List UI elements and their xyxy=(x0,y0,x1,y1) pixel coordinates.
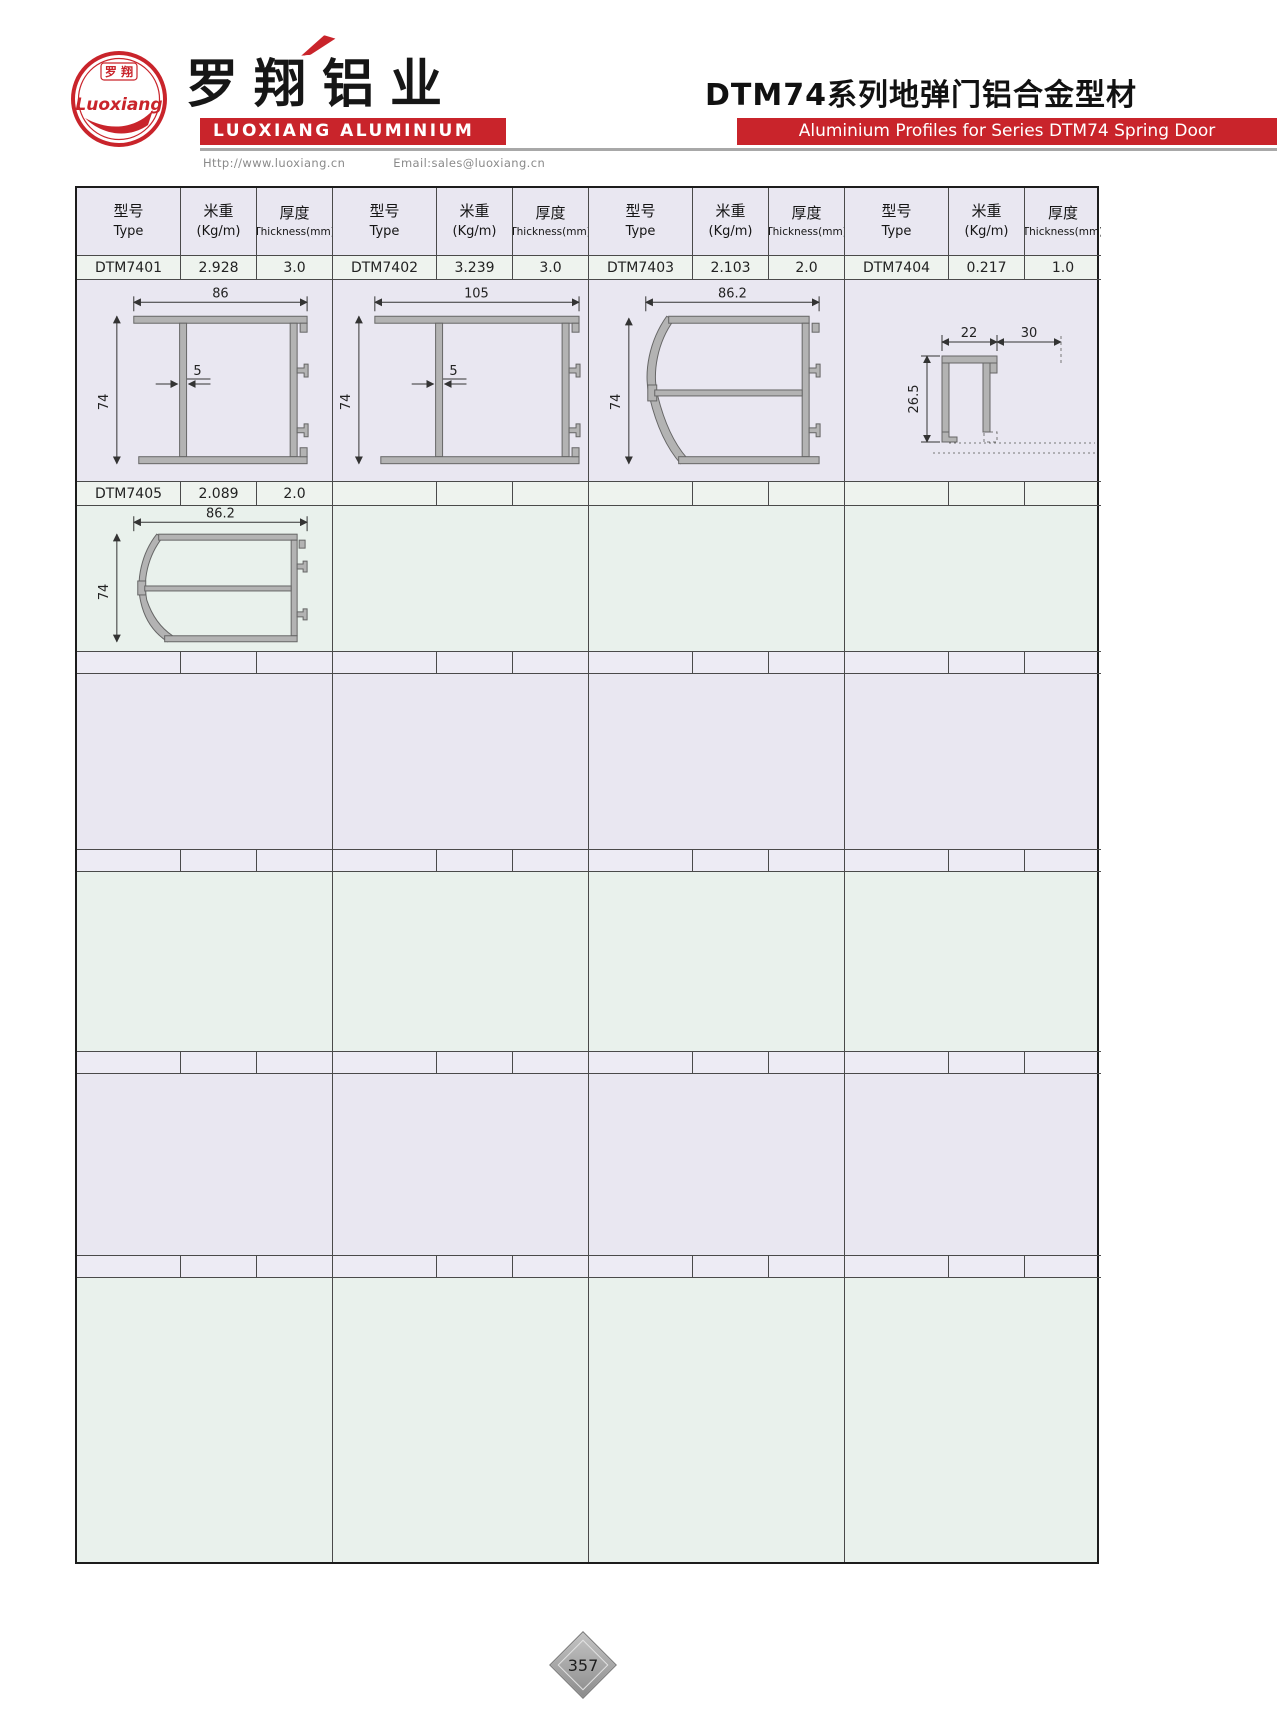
empty-drawing-cell xyxy=(77,674,333,850)
empty-cell xyxy=(1025,1052,1101,1074)
drawing-row-2: 86.2 74 xyxy=(77,506,1097,652)
empty-cell xyxy=(769,1052,845,1074)
type-cell: DTM7402 xyxy=(333,256,437,280)
thickness-cell: 3.0 xyxy=(257,256,333,280)
empty-drawing-row xyxy=(77,1074,1097,1256)
dim-width-label: 86.2 xyxy=(206,506,235,521)
empty-cell xyxy=(257,652,333,674)
empty-cell xyxy=(333,1256,437,1278)
dim-width-label: 86.2 xyxy=(718,286,747,301)
empty-drawing-row xyxy=(77,1278,1097,1562)
empty-cell xyxy=(949,850,1025,872)
empty-cell xyxy=(1025,652,1101,674)
dim-width-label: 86 xyxy=(212,286,228,301)
empty-cell xyxy=(333,1052,437,1074)
logo-script-text: Luoxiang xyxy=(75,95,162,115)
empty-cell xyxy=(589,1256,693,1278)
empty-drawing-cell xyxy=(845,506,1101,652)
weight-cell: 2.928 xyxy=(181,256,257,280)
empty-cell xyxy=(949,482,1025,506)
empty-drawing-cell xyxy=(589,674,845,850)
company-logo: 罗 翔 Luoxiang xyxy=(68,46,170,152)
dim-height-label: 74 xyxy=(97,394,112,410)
header-thickness: 厚度Thickness(mm) xyxy=(513,188,589,256)
thickness-cell: 1.0 xyxy=(1025,256,1101,280)
empty-cell xyxy=(181,1052,257,1074)
empty-drawing-cell xyxy=(589,1074,845,1256)
header-type: 型号Type xyxy=(589,188,693,256)
series-title-english-banner: Aluminium Profiles for Series DTM74 Spri… xyxy=(737,118,1277,145)
empty-drawing-cell xyxy=(845,1074,1101,1256)
empty-cell xyxy=(181,850,257,872)
header-type: 型号Type xyxy=(845,188,949,256)
drawing-row-1: 86 5 74 xyxy=(77,280,1097,482)
dim-web-label: 5 xyxy=(193,364,201,379)
empty-cell xyxy=(257,1052,333,1074)
empty-drawing-cell xyxy=(845,872,1101,1052)
header-weight: 米重(Kg/m) xyxy=(437,188,513,256)
page-number: 357 xyxy=(552,1634,614,1696)
type-cell: DTM7403 xyxy=(589,256,693,280)
header-weight: 米重(Kg/m) xyxy=(181,188,257,256)
empty-spec-row xyxy=(77,652,1097,674)
empty-cell xyxy=(513,482,589,506)
empty-drawing-cell xyxy=(77,1278,333,1562)
empty-cell xyxy=(949,1256,1025,1278)
empty-cell xyxy=(257,850,333,872)
drawing-cell-dtm7404: 22 30 26.5 xyxy=(845,280,1101,482)
empty-cell xyxy=(437,652,513,674)
empty-cell xyxy=(589,1052,693,1074)
dim-web-label: 5 xyxy=(449,364,457,379)
empty-cell xyxy=(513,1256,589,1278)
dim-width-label: 22 xyxy=(961,326,978,341)
header-thickness: 厚度Thickness(mm) xyxy=(769,188,845,256)
table-header-row: 型号Type 米重(Kg/m) 厚度Thickness(mm) 型号Type 米… xyxy=(77,188,1097,256)
empty-cell xyxy=(693,1052,769,1074)
header-type: 型号Type xyxy=(333,188,437,256)
weight-cell: 0.217 xyxy=(949,256,1025,280)
empty-cell xyxy=(845,482,949,506)
header-thickness: 厚度Thickness(mm) xyxy=(1025,188,1101,256)
series-title-chinese: DTM74系列地弹门铝合金型材 xyxy=(705,70,1137,114)
empty-cell xyxy=(949,1052,1025,1074)
empty-drawing-row xyxy=(77,872,1097,1052)
empty-drawing-cell xyxy=(589,506,845,652)
empty-cell xyxy=(437,850,513,872)
dim-height-label: 26.5 xyxy=(907,385,922,414)
empty-drawing-cell xyxy=(333,872,589,1052)
empty-cell xyxy=(589,652,693,674)
empty-cell xyxy=(1025,482,1101,506)
empty-spec-row xyxy=(77,1256,1097,1278)
empty-cell xyxy=(845,652,949,674)
empty-cell xyxy=(693,482,769,506)
empty-drawing-cell xyxy=(333,1074,589,1256)
empty-cell xyxy=(513,652,589,674)
empty-cell xyxy=(589,482,693,506)
website-text: Http://www.luoxiang.cn xyxy=(203,156,345,170)
empty-cell xyxy=(769,482,845,506)
empty-drawing-cell xyxy=(845,674,1101,850)
empty-cell xyxy=(589,850,693,872)
empty-drawing-cell xyxy=(77,872,333,1052)
dim-height-label: 74 xyxy=(97,584,112,600)
empty-drawing-row xyxy=(77,674,1097,850)
empty-drawing-cell xyxy=(333,1278,589,1562)
catalog-page: 罗 翔 Luoxiang 罗翔铝业 LUOXIANG ALUMINIUM Htt… xyxy=(0,0,1277,1721)
weight-cell: 2.089 xyxy=(181,482,257,506)
empty-cell xyxy=(693,850,769,872)
catalog-table: 型号Type 米重(Kg/m) 厚度Thickness(mm) 型号Type 米… xyxy=(75,186,1099,1564)
logo-seal-text: 罗 翔 xyxy=(105,64,133,79)
profile-drawing-dtm7405: 86.2 74 xyxy=(77,506,332,652)
empty-cell xyxy=(77,850,181,872)
empty-cell xyxy=(437,1052,513,1074)
empty-cell xyxy=(513,1052,589,1074)
empty-cell xyxy=(949,652,1025,674)
drawing-cell-dtm7402: 105 5 74 xyxy=(333,280,589,482)
profile-drawing-dtm7401: 86 5 74 xyxy=(77,280,332,482)
contact-line: Http://www.luoxiang.cnEmail:sales@luoxia… xyxy=(203,156,593,170)
spec-row-1: DTM7401 2.928 3.0 DTM7402 3.239 3.0 DTM7… xyxy=(77,256,1097,280)
empty-drawing-cell xyxy=(845,1278,1101,1562)
drawing-cell-dtm7403: 86.2 74 xyxy=(589,280,845,482)
dim-height-label: 74 xyxy=(609,394,624,410)
brand-name-english-banner: LUOXIANG ALUMINIUM xyxy=(200,118,506,145)
empty-spec-row xyxy=(77,850,1097,872)
empty-cell xyxy=(333,482,437,506)
empty-drawing-cell xyxy=(589,1278,845,1562)
empty-cell xyxy=(181,1256,257,1278)
profile-drawing-dtm7402: 105 5 74 xyxy=(333,280,588,482)
empty-cell xyxy=(769,850,845,872)
thickness-cell: 2.0 xyxy=(257,482,333,506)
empty-cell xyxy=(845,1052,949,1074)
empty-cell xyxy=(1025,850,1101,872)
dim-offset-label: 30 xyxy=(1021,326,1038,341)
empty-cell xyxy=(77,1052,181,1074)
empty-cell xyxy=(333,850,437,872)
profile-drawing-dtm7404: 22 30 26.5 xyxy=(845,280,1101,482)
empty-cell xyxy=(769,1256,845,1278)
type-cell: DTM7404 xyxy=(845,256,949,280)
empty-spec-row xyxy=(77,1052,1097,1074)
header-weight: 米重(Kg/m) xyxy=(949,188,1025,256)
empty-drawing-cell xyxy=(333,506,589,652)
empty-cell xyxy=(437,1256,513,1278)
empty-cell xyxy=(845,1256,949,1278)
empty-cell xyxy=(77,1256,181,1278)
empty-cell xyxy=(693,1256,769,1278)
empty-drawing-cell xyxy=(77,1074,333,1256)
empty-cell xyxy=(437,482,513,506)
brand-name-chinese: 罗翔铝业 xyxy=(186,42,458,117)
email-text: Email:sales@luoxiang.cn xyxy=(393,156,545,170)
weight-cell: 2.103 xyxy=(693,256,769,280)
header-divider xyxy=(200,148,1277,151)
drawing-cell-dtm7405: 86.2 74 xyxy=(77,506,333,652)
empty-cell xyxy=(513,850,589,872)
weight-cell: 3.239 xyxy=(437,256,513,280)
header-type: 型号Type xyxy=(77,188,181,256)
empty-drawing-cell xyxy=(589,872,845,1052)
dim-width-label: 105 xyxy=(464,286,489,301)
empty-cell xyxy=(769,652,845,674)
spec-row-2: DTM7405 2.089 2.0 xyxy=(77,482,1097,506)
thickness-cell: 3.0 xyxy=(513,256,589,280)
header-weight: 米重(Kg/m) xyxy=(693,188,769,256)
thickness-cell: 2.0 xyxy=(769,256,845,280)
page-number-badge: 357 xyxy=(552,1634,614,1696)
empty-cell xyxy=(77,652,181,674)
empty-cell xyxy=(1025,1256,1101,1278)
profile-drawing-dtm7403: 86.2 74 xyxy=(589,280,844,482)
type-cell: DTM7405 xyxy=(77,482,181,506)
empty-drawing-cell xyxy=(333,674,589,850)
empty-cell xyxy=(181,652,257,674)
dim-height-label: 74 xyxy=(339,394,354,410)
empty-cell xyxy=(693,652,769,674)
empty-cell xyxy=(845,850,949,872)
empty-cell xyxy=(257,1256,333,1278)
header-thickness: 厚度Thickness(mm) xyxy=(257,188,333,256)
empty-cell xyxy=(333,652,437,674)
type-cell: DTM7401 xyxy=(77,256,181,280)
drawing-cell-dtm7401: 86 5 74 xyxy=(77,280,333,482)
